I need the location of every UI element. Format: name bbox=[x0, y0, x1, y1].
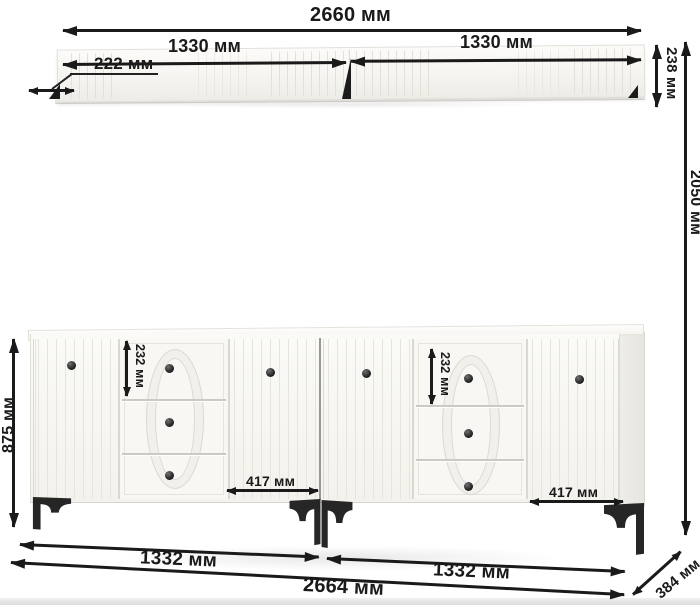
sideboard-door-4 bbox=[527, 339, 619, 499]
drawer-separator bbox=[122, 399, 226, 401]
sideboard-total-width-label: 2664 мм bbox=[303, 575, 385, 599]
door-knob bbox=[266, 368, 275, 377]
unit-divider bbox=[319, 338, 321, 500]
sideboard-leg-center-right bbox=[320, 500, 354, 550]
dim-set-height-arrow bbox=[684, 42, 687, 535]
shelf-depth-leader-line bbox=[70, 73, 158, 75]
shelf-depth-label: 222 мм bbox=[94, 55, 153, 72]
sideboard-leg-right bbox=[602, 503, 646, 557]
drawer-height-left-label: 232 мм bbox=[134, 344, 147, 388]
dim-shelf-total-width-arrow bbox=[63, 29, 641, 32]
drawer-separator bbox=[416, 459, 524, 461]
dim-door-width-right-arrow bbox=[530, 500, 623, 503]
sideboard-height-label: 875 мм bbox=[1, 397, 17, 453]
sideboard-left-section-label: 1332 мм bbox=[140, 548, 218, 570]
sideboard-door-3 bbox=[323, 339, 413, 499]
furniture-dimension-diagram: 2660 мм 1330 мм 1330 мм 222 мм 238 мм 20… bbox=[0, 0, 700, 605]
shelf-fluting bbox=[356, 50, 434, 96]
shelf-right-section-label: 1330 мм bbox=[460, 33, 533, 51]
drawer-separator bbox=[122, 453, 226, 455]
drawer-knob bbox=[165, 471, 174, 480]
drawer-knob bbox=[464, 374, 473, 383]
oval-molding-left bbox=[146, 349, 204, 489]
set-height-label: 2050 мм bbox=[687, 170, 700, 235]
shelf-bracket-right bbox=[628, 85, 638, 98]
drawer-knob bbox=[464, 429, 473, 438]
door-knob bbox=[362, 369, 371, 378]
drawer-knob bbox=[165, 418, 174, 427]
shelf-height-label: 238 мм bbox=[664, 47, 679, 100]
sideboard bbox=[30, 334, 620, 503]
drawer-height-right-label: 232 мм bbox=[439, 352, 452, 396]
sideboard-side-face bbox=[618, 330, 645, 507]
sideboard-right-section-label: 1332 мм bbox=[433, 560, 511, 582]
drawer-separator bbox=[416, 405, 524, 407]
floor-edge bbox=[0, 598, 700, 605]
shelf-left-section-label: 1330 мм bbox=[168, 37, 241, 55]
dim-drawer-height-right-arrow bbox=[430, 349, 433, 404]
dim-door-width-left-arrow bbox=[227, 489, 318, 492]
door-knob bbox=[575, 375, 584, 384]
shelf-total-width-label: 2660 мм bbox=[310, 5, 391, 25]
shelf-fluting bbox=[518, 49, 560, 94]
sideboard-leg-center-left bbox=[288, 499, 322, 547]
sideboard-door-1 bbox=[33, 339, 119, 499]
drawer-knob bbox=[165, 364, 174, 373]
drawer-knob bbox=[464, 482, 473, 491]
door-width-left-label: 417 мм bbox=[246, 474, 295, 488]
dim-shelf-height-arrow bbox=[655, 45, 658, 107]
dim-drawer-height-left-arrow bbox=[125, 341, 128, 396]
door-width-right-label: 417 мм bbox=[549, 485, 598, 499]
sideboard-depth-label: 384 мм bbox=[653, 556, 700, 601]
shelf-fluting bbox=[198, 52, 252, 97]
sideboard-leg-left bbox=[31, 497, 73, 531]
door-knob bbox=[67, 361, 76, 370]
